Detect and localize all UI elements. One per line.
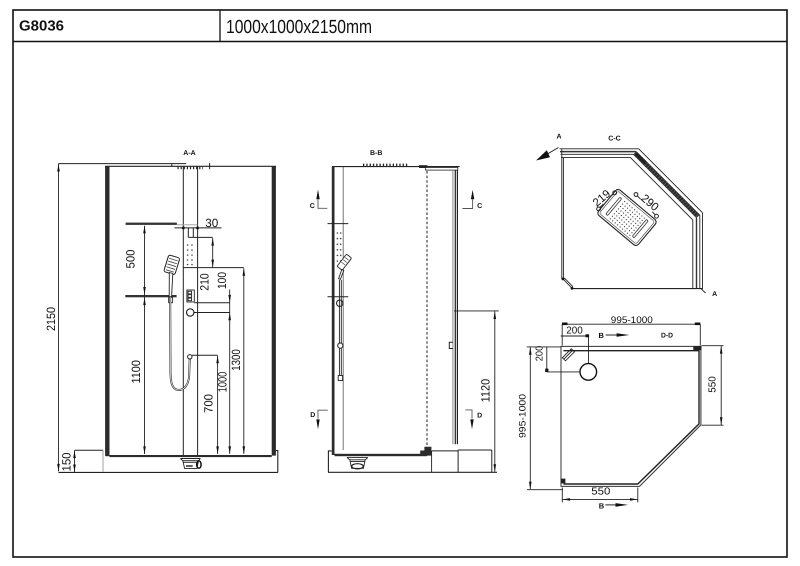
svg-text:2150: 2150 — [44, 307, 58, 331]
svg-text:1000x1000x2150mm: 1000x1000x2150mm — [226, 17, 372, 38]
svg-text:D: D — [477, 412, 482, 419]
svg-text:500: 500 — [123, 249, 137, 268]
svg-text:C-C: C-C — [608, 136, 620, 143]
svg-text:C: C — [477, 203, 482, 210]
svg-text:30: 30 — [205, 216, 218, 230]
svg-text:C: C — [310, 203, 315, 210]
svg-text:G8036: G8036 — [19, 19, 64, 35]
svg-text:B-B: B-B — [370, 150, 382, 157]
svg-text:1120: 1120 — [478, 379, 492, 403]
svg-text:D: D — [310, 412, 315, 419]
svg-text:A: A — [556, 134, 561, 141]
svg-text:210: 210 — [198, 273, 212, 291]
svg-text:B: B — [599, 501, 605, 510]
svg-text:A-A: A-A — [183, 150, 195, 157]
svg-text:B: B — [598, 331, 604, 340]
svg-text:550: 550 — [591, 487, 610, 498]
svg-text:700: 700 — [201, 394, 215, 413]
svg-text:150: 150 — [59, 452, 73, 471]
svg-text:1300: 1300 — [229, 349, 243, 371]
svg-text:200: 200 — [535, 345, 546, 361]
svg-text:A: A — [712, 291, 717, 298]
svg-text:D-D: D-D — [661, 333, 673, 340]
svg-text:995-1000: 995-1000 — [611, 315, 653, 326]
svg-text:550: 550 — [707, 376, 718, 393]
svg-text:1100: 1100 — [129, 360, 143, 384]
svg-text:200: 200 — [566, 326, 583, 337]
svg-text:100: 100 — [215, 272, 229, 289]
svg-text:995-1000: 995-1000 — [518, 394, 529, 438]
